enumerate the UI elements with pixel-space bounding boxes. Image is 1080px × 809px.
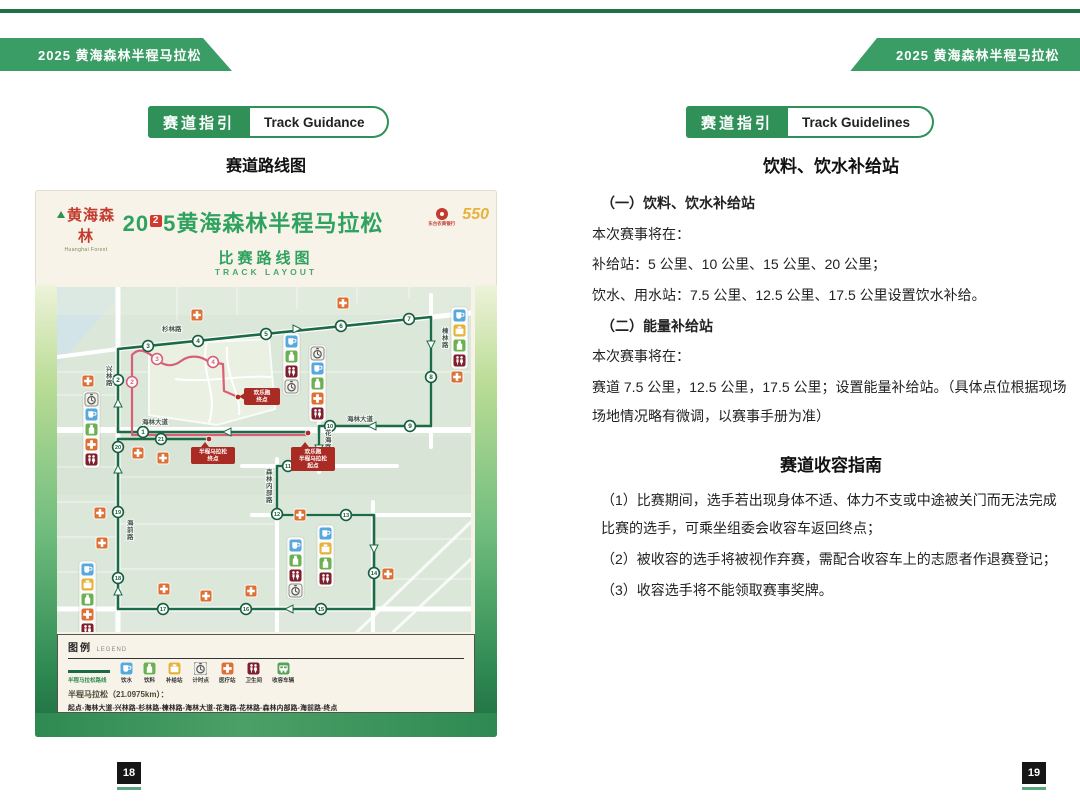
legend-item-drink: 饮料 bbox=[143, 662, 156, 684]
paragraph: 饮水、用水站：7.5 公里、12.5 公里、17.5 公里设置饮水补给。 bbox=[592, 281, 1070, 310]
toilet-icon bbox=[247, 662, 260, 675]
svg-text:3: 3 bbox=[155, 356, 159, 363]
road-label: 楝林路 bbox=[442, 326, 449, 349]
road-label: 杉林路 bbox=[162, 324, 182, 333]
supply-icon bbox=[319, 542, 332, 555]
section1-title: 饮料、饮水补给站 bbox=[592, 152, 1070, 177]
legend-title-zh: 图例 bbox=[68, 643, 92, 654]
page-number-left-underline bbox=[117, 787, 141, 790]
drink-icon bbox=[319, 557, 332, 570]
medical-icon bbox=[81, 608, 94, 621]
km-marker-2: 2 bbox=[113, 375, 124, 386]
drink-icon bbox=[289, 554, 302, 567]
banner-right-text: 2025 黄海森林半程马拉松 bbox=[896, 45, 1060, 64]
bank-emblem-icon bbox=[436, 208, 448, 220]
svg-text:20: 20 bbox=[115, 445, 121, 451]
svg-text:6: 6 bbox=[339, 323, 343, 330]
medical-icon bbox=[221, 662, 234, 675]
medical-icon bbox=[191, 309, 203, 321]
svg-text:2: 2 bbox=[116, 377, 120, 384]
legend-half-title: 半程马拉松（21.0975km）： bbox=[68, 689, 464, 700]
water-icon bbox=[319, 527, 332, 540]
km-marker-3: 3 bbox=[152, 354, 163, 365]
legend-item-toilet: 卫生间 bbox=[246, 662, 263, 684]
svg-text:3: 3 bbox=[146, 343, 150, 350]
drink-icon bbox=[311, 377, 324, 390]
road-label: 海林大道 bbox=[347, 414, 374, 423]
svg-text:16: 16 bbox=[243, 607, 249, 613]
svg-text:欢乐跑: 欢乐跑 bbox=[253, 389, 271, 397]
km-marker-4: 4 bbox=[193, 336, 204, 347]
km-marker-7: 7 bbox=[404, 314, 415, 325]
paragraph: 本次赛事将在： bbox=[592, 220, 1070, 249]
svg-text:欢乐跑: 欢乐跑 bbox=[304, 448, 322, 456]
road-label: 森林内部路 bbox=[266, 467, 273, 504]
page-number-right: 19 bbox=[1022, 762, 1046, 790]
svg-text:8: 8 bbox=[429, 374, 433, 381]
medical-icon bbox=[200, 590, 212, 602]
supply-icon bbox=[81, 578, 94, 591]
svg-text:13: 13 bbox=[343, 513, 349, 519]
legend-icons-row: 半程马拉松路线 饮水饮料补给站计时点医疗站卫生间收容车辆 bbox=[68, 662, 464, 684]
route-point-dot bbox=[305, 430, 311, 436]
map-legend: 图例 LEGEND 半程马拉松路线 饮水饮料补给站计时点医疗站卫生间收容车辆 半… bbox=[57, 634, 475, 713]
tree-icon bbox=[57, 211, 65, 218]
km-marker-18: 18 bbox=[113, 573, 124, 584]
toilet-icon bbox=[85, 453, 98, 466]
top-rule bbox=[0, 9, 1080, 13]
poster-left-decoration bbox=[35, 285, 57, 737]
drink-icon bbox=[85, 423, 98, 436]
water-icon bbox=[311, 362, 324, 375]
km-marker-14: 14 bbox=[369, 568, 380, 579]
svg-text:5: 5 bbox=[264, 331, 268, 338]
svg-text:9: 9 bbox=[408, 423, 412, 430]
legend-item-vehicle: 收容车辆 bbox=[272, 662, 294, 684]
medical-icon bbox=[337, 297, 349, 309]
sweep-guide-paragraphs: （1）比赛期间，选手若出现身体不适、体力不支或中途被关门而无法完成比赛的选手，可… bbox=[592, 486, 1070, 605]
sponsor-550-logo: 550 bbox=[462, 208, 489, 222]
km-marker-13: 13 bbox=[341, 510, 352, 521]
svg-text:2: 2 bbox=[130, 379, 134, 386]
page-number-left-value: 18 bbox=[117, 762, 141, 784]
km-marker-2: 2 bbox=[127, 377, 138, 388]
svg-text:终点: 终点 bbox=[256, 396, 268, 404]
page-number-left: 18 bbox=[117, 762, 141, 790]
poster-right-decoration bbox=[475, 285, 497, 737]
map-heading: 赛道路线图 bbox=[35, 152, 497, 176]
medical-icon bbox=[294, 509, 306, 521]
km-marker-5: 5 bbox=[261, 329, 272, 340]
paragraph: （1）比赛期间，选手若出现身体不适、体力不支或中途被关门而无法完成比赛的选手，可… bbox=[592, 486, 1070, 543]
vehicle-icon bbox=[277, 662, 290, 675]
paragraph: （2）被收容的选手将被视作弃赛，需配合收容车上的志愿者作退赛登记； bbox=[592, 545, 1070, 574]
km-marker-15: 15 bbox=[316, 604, 327, 615]
map-callout: 欢乐跑终点 bbox=[239, 388, 280, 405]
sponsor-550-text: 550 bbox=[462, 208, 489, 222]
title-digit-box: 2 bbox=[150, 215, 162, 227]
page-number-right-underline bbox=[1022, 787, 1046, 790]
medical-icon bbox=[132, 447, 144, 459]
km-marker-8: 8 bbox=[426, 372, 437, 383]
bank-logo: 东台农商银行 bbox=[428, 208, 455, 227]
toilet-icon bbox=[453, 354, 466, 367]
svg-text:12: 12 bbox=[274, 512, 280, 518]
water-icon bbox=[85, 408, 98, 421]
legend-title-en: LEGEND bbox=[96, 647, 127, 653]
water-icon bbox=[453, 309, 466, 322]
badge-right-zh: 赛道指引 bbox=[686, 106, 788, 138]
road-label: 兴林路 bbox=[106, 364, 113, 387]
road-label: 海林大道 bbox=[142, 417, 169, 426]
banner-left-text: 2025 黄海森林半程马拉松 bbox=[38, 45, 202, 64]
legend-item-timer: 计时点 bbox=[193, 662, 210, 684]
km-marker-12: 12 bbox=[272, 509, 283, 520]
legend-item-supply: 补给站 bbox=[166, 662, 183, 684]
km-marker-3: 3 bbox=[143, 341, 154, 352]
bank-name: 东台农商银行 bbox=[428, 221, 455, 227]
svg-text:19: 19 bbox=[115, 510, 121, 516]
title-digit5: 5 bbox=[163, 211, 176, 236]
section-badge-left: 赛道指引 Track Guidance bbox=[148, 106, 389, 138]
timer-icon bbox=[85, 393, 98, 406]
svg-text:11: 11 bbox=[285, 464, 291, 470]
svg-text:半程马拉松: 半程马拉松 bbox=[199, 448, 227, 456]
drink-icon bbox=[81, 593, 94, 606]
badge-left-en: Track Guidance bbox=[250, 106, 389, 138]
toilet-icon bbox=[319, 572, 332, 585]
medical-icon bbox=[311, 392, 324, 405]
water-icon bbox=[81, 563, 94, 576]
toilet-icon bbox=[81, 623, 94, 632]
km-marker-21: 21 bbox=[156, 434, 167, 445]
track-layout-poster: 黄海森林 Huanghai Forest 2025黄海森林半程马拉松 东台农商银… bbox=[35, 190, 497, 737]
water-icon bbox=[285, 335, 298, 348]
poster-bottom-decoration bbox=[35, 713, 497, 737]
route-sample-label: 半程马拉松路线 bbox=[68, 676, 110, 684]
banner-right: 2025 黄海森林半程马拉松 bbox=[848, 38, 1080, 71]
timer-icon bbox=[285, 380, 298, 393]
supply-icon bbox=[168, 662, 181, 675]
road-label: 海前路 bbox=[127, 518, 134, 541]
km-marker-16: 16 bbox=[241, 604, 252, 615]
supply-station-paragraphs: （一）饮料、饮水补给站本次赛事将在：补给站：5 公里、10 公里、15 公里、2… bbox=[592, 189, 1070, 431]
svg-text:21: 21 bbox=[158, 437, 164, 443]
svg-text:17: 17 bbox=[160, 607, 166, 613]
svg-text:4: 4 bbox=[211, 359, 215, 366]
toilet-icon bbox=[311, 407, 324, 420]
timer-icon bbox=[289, 584, 302, 597]
water-icon bbox=[120, 662, 133, 675]
medical-icon bbox=[382, 568, 394, 580]
poster-subtitle-zh: 比赛路线图 bbox=[35, 247, 497, 268]
section2-title: 赛道收容指南 bbox=[592, 451, 1070, 476]
legend-half-route: 起点-海林大道-兴林路-杉林路-楝林路-海林大道-花海路-花林路-森林内部路-海… bbox=[68, 702, 464, 712]
water-icon bbox=[289, 539, 302, 552]
km-marker-6: 6 bbox=[336, 321, 347, 332]
km-marker-17: 17 bbox=[158, 604, 169, 615]
legend-item-medical: 医疗站 bbox=[219, 662, 236, 684]
svg-text:7: 7 bbox=[407, 316, 411, 323]
medical-icon bbox=[451, 371, 463, 383]
timer-icon bbox=[194, 662, 207, 675]
medical-icon bbox=[245, 585, 257, 597]
svg-text:半程马拉松: 半程马拉松 bbox=[299, 455, 327, 463]
route-line-sample bbox=[68, 670, 110, 673]
svg-text:1: 1 bbox=[141, 429, 145, 436]
svg-text:终点: 终点 bbox=[207, 455, 219, 463]
legend-item-water: 饮水 bbox=[120, 662, 133, 684]
toilet-icon bbox=[285, 365, 298, 378]
paragraph: 赛道 7.5 公里，12.5 公里，17.5 公里；设置能量补给站。（具体点位根… bbox=[592, 373, 1070, 430]
route-point-dot bbox=[206, 436, 212, 442]
drink-icon bbox=[285, 350, 298, 363]
paragraph: 补给站：5 公里、10 公里、15 公里、20 公里； bbox=[592, 250, 1070, 279]
sponsor-logos: 东台农商银行 550 bbox=[428, 208, 489, 227]
page-number-right-value: 19 bbox=[1022, 762, 1046, 784]
park-area bbox=[149, 339, 275, 425]
toilet-icon bbox=[289, 569, 302, 582]
badge-left-zh: 赛道指引 bbox=[148, 106, 250, 138]
svg-text:14: 14 bbox=[371, 571, 378, 577]
paragraph: （一）饮料、饮水补给站 bbox=[592, 189, 1070, 218]
legend-route-sample: 半程马拉松路线 bbox=[68, 670, 110, 684]
medical-icon bbox=[157, 452, 169, 464]
km-marker-20: 20 bbox=[113, 442, 124, 453]
poster-subtitle-en: TRACK LAYOUT bbox=[35, 267, 497, 277]
km-marker-4: 4 bbox=[208, 357, 219, 368]
medical-icon bbox=[96, 537, 108, 549]
km-marker-9: 9 bbox=[405, 421, 416, 432]
km-marker-1: 1 bbox=[138, 427, 149, 438]
medical-icon bbox=[158, 583, 170, 595]
drink-icon bbox=[453, 339, 466, 352]
paragraph: （二）能量补给站 bbox=[592, 312, 1070, 341]
km-marker-19: 19 bbox=[113, 507, 124, 518]
title-zh: 黄海森林半程马拉松 bbox=[176, 211, 383, 236]
svg-text:18: 18 bbox=[115, 576, 121, 582]
timer-icon bbox=[311, 347, 324, 360]
medical-icon bbox=[94, 507, 106, 519]
right-page-content: 饮料、饮水补给站 （一）饮料、饮水补给站本次赛事将在：补给站：5 公里、10 公… bbox=[592, 148, 1070, 606]
supply-icon bbox=[453, 324, 466, 337]
title-digits: 20 bbox=[123, 211, 149, 236]
medical-icon bbox=[82, 375, 94, 387]
drink-icon bbox=[143, 662, 156, 675]
badge-right-en: Track Guidelines bbox=[788, 106, 934, 138]
medical-icon bbox=[85, 438, 98, 451]
svg-text:4: 4 bbox=[196, 338, 200, 345]
track-map: 123456789101112131415161718192021234 杉林路… bbox=[57, 287, 471, 632]
legend-header: 图例 LEGEND bbox=[68, 638, 464, 659]
banner-left: 2025 黄海森林半程马拉松 bbox=[0, 38, 232, 71]
paragraph: （3）收容选手将不能领取赛事奖牌。 bbox=[592, 576, 1070, 605]
poster-title: 2025黄海森林半程马拉松 bbox=[105, 206, 401, 238]
paragraph: 本次赛事将在： bbox=[592, 342, 1070, 371]
section-badge-right: 赛道指引 Track Guidelines bbox=[686, 106, 934, 138]
svg-text:15: 15 bbox=[318, 607, 324, 613]
svg-text:起点: 起点 bbox=[306, 462, 319, 470]
